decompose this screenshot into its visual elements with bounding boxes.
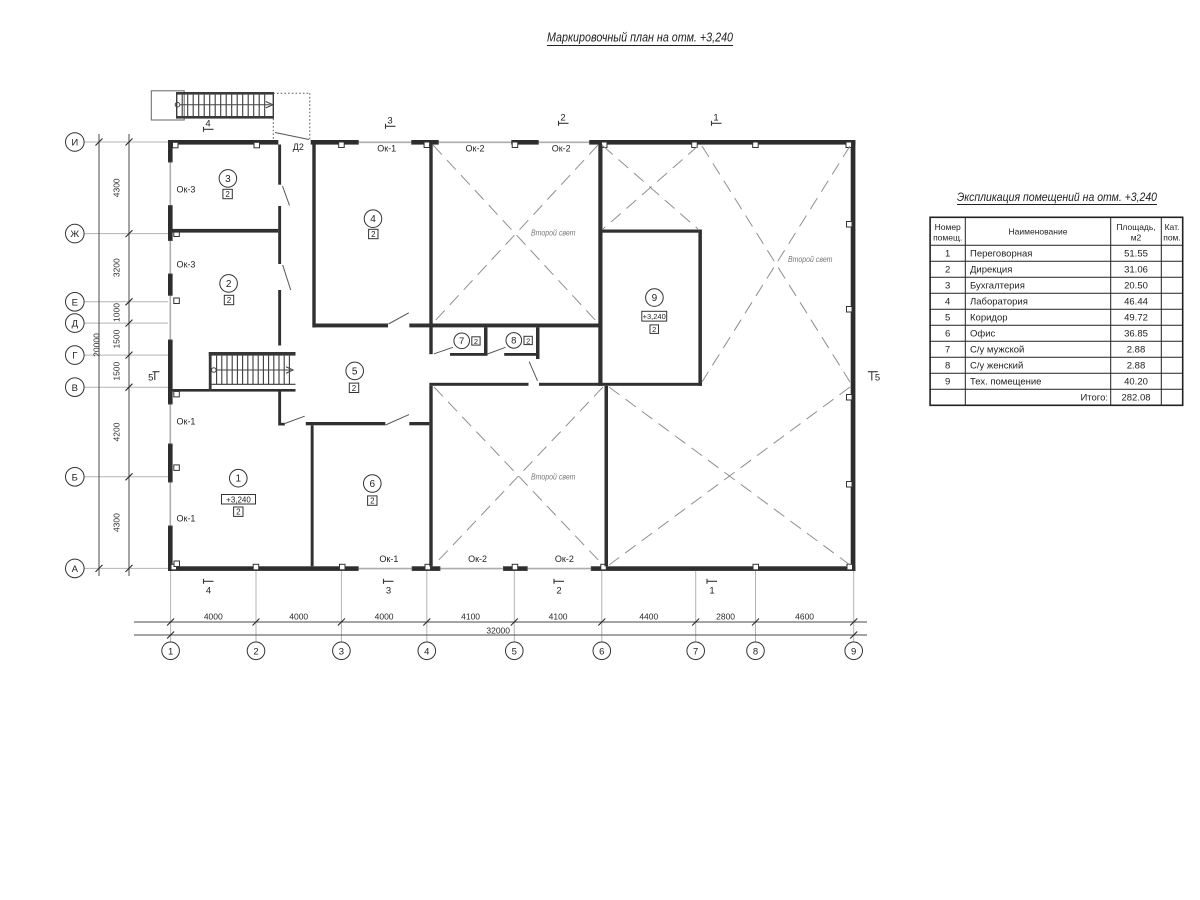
svg-text:4000: 4000	[375, 612, 394, 622]
svg-text:282.08: 282.08	[1121, 393, 1150, 404]
svg-text:32000: 32000	[486, 625, 510, 635]
svg-text:Г: Г	[72, 351, 77, 362]
svg-text:Ок-3: Ок-3	[177, 184, 196, 194]
svg-text:Бухгалтерия: Бухгалтерия	[970, 281, 1025, 292]
svg-text:7: 7	[693, 646, 698, 657]
svg-text:2: 2	[236, 508, 241, 517]
svg-text:2.88: 2.88	[1127, 345, 1146, 356]
svg-text:Второй свет: Второй свет	[531, 472, 576, 482]
svg-text:2: 2	[556, 586, 561, 597]
svg-text:Итого:: Итого:	[1080, 393, 1108, 404]
svg-text:Наименование: Наименование	[1009, 227, 1068, 237]
svg-text:Ж: Ж	[70, 229, 79, 240]
svg-text:3: 3	[387, 116, 392, 127]
svg-text:40.20: 40.20	[1124, 377, 1148, 388]
svg-text:С/у женский: С/у женский	[970, 361, 1023, 372]
svg-text:3: 3	[386, 586, 391, 597]
svg-text:Ок-2: Ок-2	[555, 554, 574, 564]
svg-text:2: 2	[370, 497, 375, 506]
svg-text:4300: 4300	[112, 178, 122, 197]
svg-text:Тех. помещение: Тех. помещение	[970, 377, 1041, 388]
svg-text:1: 1	[713, 113, 718, 124]
svg-text:пом.: пом.	[1163, 233, 1181, 243]
svg-text:1000: 1000	[112, 303, 122, 322]
svg-text:3: 3	[945, 281, 950, 292]
svg-text:4: 4	[424, 646, 429, 657]
svg-text:1: 1	[709, 586, 714, 597]
svg-text:Д2: Д2	[293, 142, 304, 152]
svg-text:Лаборатория: Лаборатория	[970, 297, 1028, 308]
svg-text:7: 7	[945, 345, 950, 356]
svg-text:3: 3	[225, 174, 231, 185]
svg-text:Ок-1: Ок-1	[177, 417, 196, 427]
svg-text:2: 2	[560, 113, 565, 124]
svg-text:4: 4	[205, 119, 210, 130]
svg-text:Б: Б	[72, 472, 78, 483]
svg-text:Ок-1: Ок-1	[377, 144, 396, 154]
svg-text:Переговорная: Переговорная	[970, 249, 1032, 260]
svg-text:+3,240: +3,240	[226, 495, 251, 504]
svg-text:Маркировочный план на отм. +3,: Маркировочный план на отм. +3,240	[547, 30, 734, 45]
svg-text:4: 4	[945, 297, 950, 308]
svg-text:2: 2	[352, 384, 357, 393]
svg-text:9: 9	[945, 377, 950, 388]
svg-text:3: 3	[339, 646, 344, 657]
svg-text:4100: 4100	[461, 612, 480, 622]
svg-text:м2: м2	[1131, 233, 1142, 243]
svg-text:Ок-2: Ок-2	[552, 144, 571, 154]
svg-text:6: 6	[370, 479, 376, 490]
svg-text:4000: 4000	[204, 612, 223, 622]
svg-text:4300: 4300	[112, 513, 122, 532]
svg-text:2: 2	[371, 230, 376, 239]
svg-text:И: И	[71, 138, 78, 149]
svg-text:2: 2	[652, 325, 656, 334]
svg-text:5: 5	[945, 313, 950, 324]
svg-text:8: 8	[753, 646, 758, 657]
svg-text:4100: 4100	[549, 612, 568, 622]
svg-text:6: 6	[599, 646, 604, 657]
svg-text:36.85: 36.85	[1124, 329, 1148, 340]
svg-text:4: 4	[370, 214, 376, 225]
svg-text:46.44: 46.44	[1124, 297, 1148, 308]
svg-text:3200: 3200	[112, 258, 122, 277]
svg-text:2: 2	[226, 279, 232, 290]
svg-text:4200: 4200	[112, 422, 122, 441]
svg-text:Номер: Номер	[935, 222, 961, 232]
svg-text:2800: 2800	[716, 612, 735, 622]
svg-text:5: 5	[512, 646, 517, 657]
svg-text:6: 6	[945, 329, 950, 340]
svg-text:Второй свет: Второй свет	[531, 227, 576, 237]
svg-text:2: 2	[225, 190, 230, 199]
svg-text:8: 8	[945, 361, 950, 372]
svg-text:В: В	[72, 383, 78, 394]
svg-text:Офис: Офис	[970, 329, 996, 340]
svg-text:Дирекция: Дирекция	[970, 265, 1012, 276]
svg-text:Ок-1: Ок-1	[379, 554, 398, 564]
svg-text:2: 2	[474, 337, 478, 346]
svg-text:9: 9	[851, 646, 856, 657]
svg-text:Д: Д	[72, 319, 79, 330]
svg-text:Ок-3: Ок-3	[177, 260, 196, 270]
svg-text:1: 1	[945, 249, 950, 260]
svg-text:2.88: 2.88	[1127, 361, 1146, 372]
svg-text:5: 5	[148, 373, 153, 384]
svg-text:51.55: 51.55	[1124, 249, 1148, 260]
svg-text:2: 2	[945, 265, 950, 276]
svg-text:4000: 4000	[289, 612, 308, 622]
svg-text:1: 1	[168, 646, 173, 657]
svg-text:Ок-2: Ок-2	[466, 144, 485, 154]
svg-text:49.72: 49.72	[1124, 313, 1148, 324]
svg-text:Кат.: Кат.	[1165, 222, 1180, 232]
svg-text:5: 5	[875, 373, 880, 384]
svg-text:С/у мужской: С/у мужской	[970, 345, 1024, 356]
svg-text:8: 8	[511, 336, 516, 347]
svg-text:20000: 20000	[92, 333, 102, 357]
svg-text:Площадь,: Площадь,	[1116, 222, 1155, 232]
svg-text:9: 9	[652, 293, 658, 304]
svg-text:Е: Е	[72, 297, 78, 308]
svg-text:31.06: 31.06	[1124, 265, 1148, 276]
svg-text:4600: 4600	[795, 612, 814, 622]
svg-text:5: 5	[352, 366, 358, 377]
svg-text:Коридор: Коридор	[970, 313, 1008, 324]
svg-text:4400: 4400	[639, 612, 658, 622]
svg-text:2: 2	[253, 646, 258, 657]
svg-text:4: 4	[206, 586, 211, 597]
svg-text:2: 2	[526, 336, 530, 345]
svg-text:помещ.: помещ.	[933, 233, 962, 243]
svg-text:Экспликация помещений на отм.: Экспликация помещений на отм. +3,240	[957, 190, 1157, 204]
svg-text:2: 2	[227, 296, 232, 305]
svg-text:20.50: 20.50	[1124, 281, 1148, 292]
svg-text:А: А	[72, 564, 79, 575]
svg-text:+3,240: +3,240	[643, 312, 666, 321]
svg-text:1500: 1500	[112, 361, 122, 380]
svg-text:Ок-2: Ок-2	[468, 554, 487, 564]
svg-text:1500: 1500	[112, 329, 122, 348]
svg-text:Второй свет: Второй свет	[788, 254, 833, 264]
svg-text:Ок-1: Ок-1	[177, 514, 196, 524]
svg-text:1: 1	[236, 474, 242, 485]
svg-text:7: 7	[459, 336, 464, 347]
